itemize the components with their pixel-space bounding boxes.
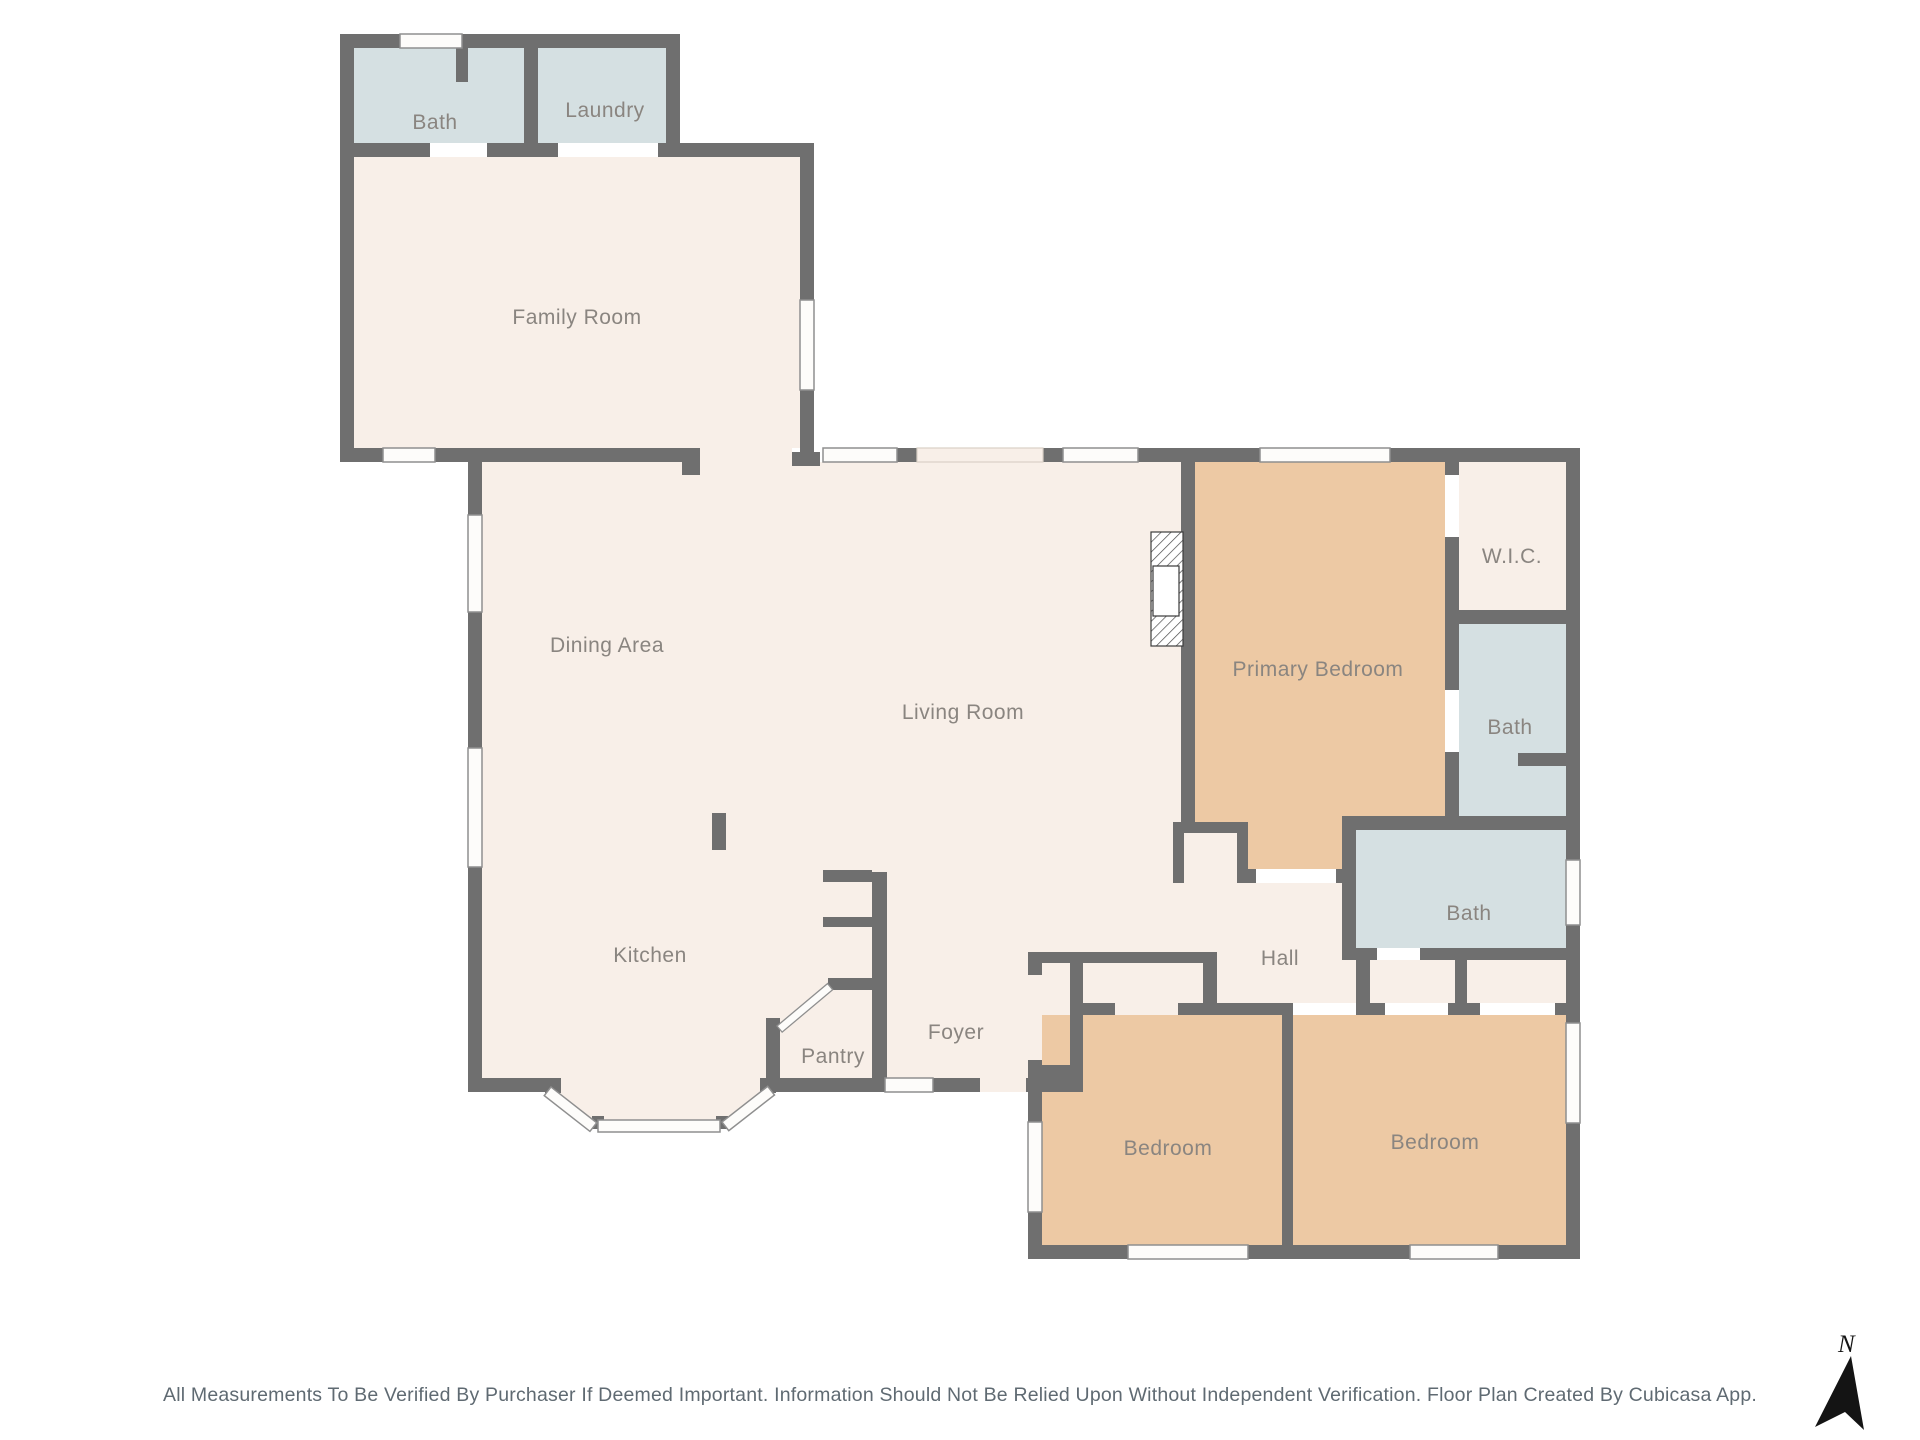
room-label-hall-bath: Bath <box>1446 902 1491 925</box>
room-label-kitchen: Kitchen <box>613 944 687 967</box>
room-label-dining-area: Dining Area <box>550 634 664 657</box>
wall-segment <box>1282 1003 1293 1259</box>
wall-segment <box>1203 952 1217 1008</box>
window <box>800 300 814 390</box>
wall-segment <box>1028 952 1042 975</box>
room-label-primary-bath: Bath <box>1487 716 1532 739</box>
wall-segment <box>1248 869 1256 883</box>
room-label-pantry: Pantry <box>801 1045 865 1068</box>
wall-segment <box>1445 462 1459 475</box>
wall-segment <box>933 1078 980 1092</box>
wall-segment <box>1420 948 1580 960</box>
wall-segment <box>1026 1078 1083 1092</box>
window <box>823 448 897 462</box>
wall-segment <box>823 870 872 882</box>
wall-segment <box>1083 1003 1115 1015</box>
room-laundry <box>538 48 666 143</box>
wall-segment <box>682 448 700 475</box>
room-label-laundry: Laundry <box>565 99 644 122</box>
wall-segment <box>1237 822 1248 883</box>
room-label-living-room: Living Room <box>902 701 1024 724</box>
wall-segment <box>487 143 558 157</box>
room-label-foyer: Foyer <box>928 1021 984 1044</box>
room-label-hall: Hall <box>1261 947 1299 970</box>
window <box>468 515 482 612</box>
wall-segment <box>1043 448 1063 462</box>
room-wic <box>1459 462 1566 610</box>
wall-segment <box>1336 869 1356 883</box>
wall-segment <box>1448 1003 1480 1015</box>
room-bedroom-right <box>1293 1015 1566 1245</box>
wall-segment <box>1518 753 1566 766</box>
window <box>400 34 462 48</box>
compass-n-label: N <box>1837 1331 1856 1358</box>
wall-segment <box>823 917 872 927</box>
room-label-bedroom-left: Bedroom <box>1124 1137 1213 1160</box>
floor-plan-page: Bath Laundry Family Room Dining Area Liv… <box>0 0 1920 1440</box>
wall-segment <box>1028 952 1217 963</box>
wall-segment <box>1173 822 1248 833</box>
room-primary-closet <box>1184 833 1237 883</box>
wall-segment <box>766 1030 780 1092</box>
floor-plan-drawing: Bath Laundry Family Room Dining Area Liv… <box>0 0 1920 1440</box>
wall-segment <box>1445 610 1580 624</box>
disclaimer-text: All Measurements To Be Verified By Purch… <box>0 1384 1920 1407</box>
room-family-opening <box>700 448 792 462</box>
wall-segment <box>1178 1003 1282 1015</box>
room-family-room <box>354 157 800 448</box>
window <box>1566 860 1580 925</box>
wall-segment <box>658 143 680 157</box>
wall-segment <box>767 1078 885 1092</box>
room-label-family-room: Family Room <box>512 306 641 329</box>
window <box>1128 1245 1248 1259</box>
wall-segment <box>340 34 680 48</box>
bay-window-center <box>598 1120 720 1132</box>
wall-segment <box>1555 1003 1580 1015</box>
window <box>1410 1245 1498 1259</box>
fireplace <box>1151 532 1183 646</box>
wall-segment <box>1356 1003 1385 1015</box>
room-floors <box>354 48 1566 1245</box>
wall-segment <box>712 813 726 850</box>
wall-segment <box>872 872 887 1092</box>
wall-segment <box>1342 816 1356 960</box>
window <box>468 748 482 867</box>
wall-segment <box>828 978 872 990</box>
room-label-wic: W.I.C. <box>1482 545 1542 568</box>
window <box>885 1078 933 1092</box>
wall-segment <box>456 48 468 82</box>
wall-segment <box>524 34 538 157</box>
patio-opening <box>917 448 1043 462</box>
room-hall-bath <box>1356 830 1566 948</box>
wall-segment <box>1455 960 1467 1003</box>
wall-segment <box>1173 822 1184 883</box>
wall-segment <box>1070 963 1083 1077</box>
room-label-bath-upper: Bath <box>412 111 457 134</box>
window <box>1260 448 1390 462</box>
fireplace-box <box>1153 566 1179 616</box>
room-bedroom-closets <box>1370 960 1566 1003</box>
wall-segment <box>792 452 820 466</box>
compass: N <box>1815 1331 1864 1430</box>
room-label-bedroom-right: Bedroom <box>1391 1131 1480 1154</box>
window <box>1028 1122 1042 1212</box>
wall-segment <box>1566 448 1580 1259</box>
window <box>1063 448 1138 462</box>
wall-segment <box>1342 948 1377 960</box>
wall-segment <box>666 34 680 157</box>
window <box>383 448 435 462</box>
wall-segment <box>340 143 430 157</box>
wall-segment <box>1042 1065 1070 1077</box>
wall-segment <box>1342 816 1580 830</box>
room-label-primary-bedroom: Primary Bedroom <box>1233 658 1404 681</box>
window <box>1566 1023 1580 1123</box>
wall-segment <box>340 34 354 462</box>
wall-segment <box>680 143 814 157</box>
wall-segment <box>468 1078 548 1092</box>
wall-segment <box>897 448 917 462</box>
